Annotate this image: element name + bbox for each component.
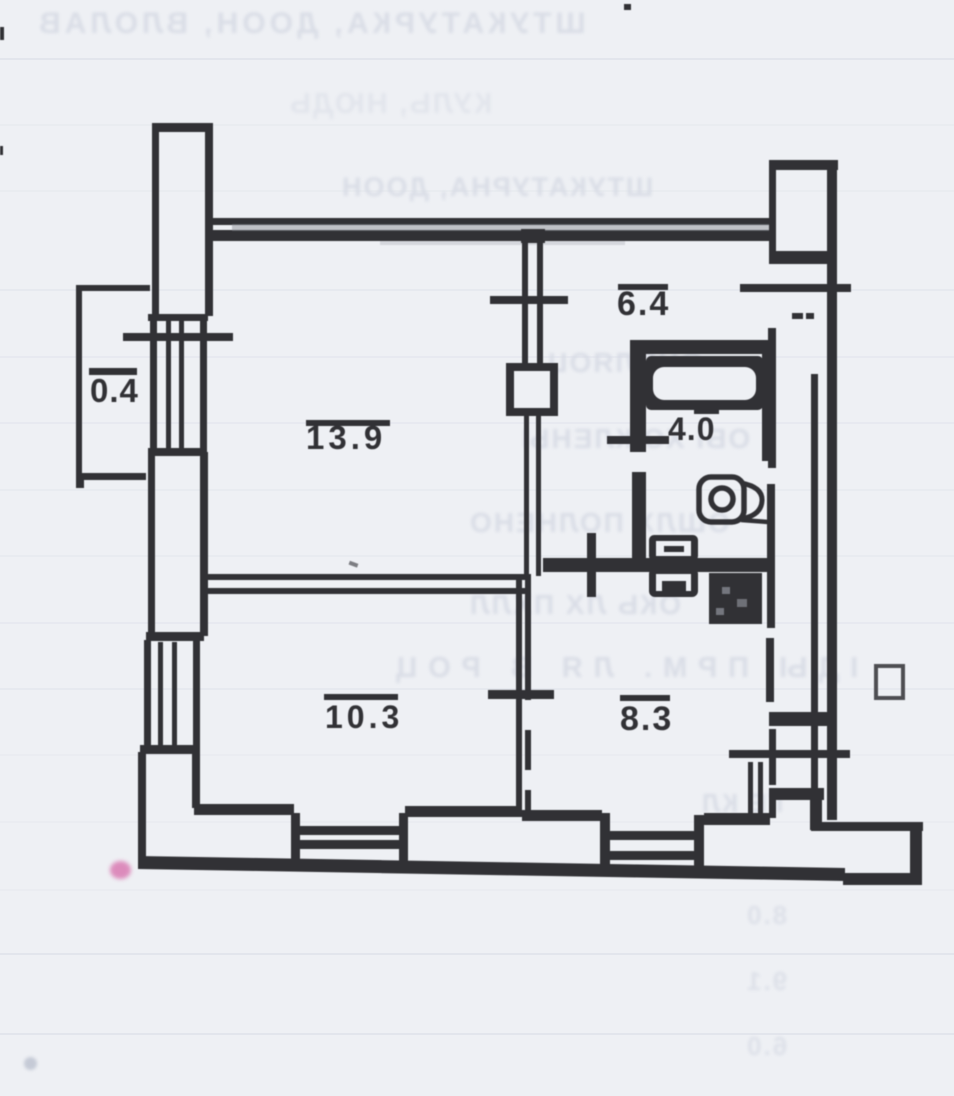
svg-text:0.4: 0.4 xyxy=(90,372,139,409)
svg-text:4.0: 4.0 xyxy=(668,411,715,447)
svg-text:13.9: 13.9 xyxy=(306,419,386,456)
svg-text:8.3: 8.3 xyxy=(620,700,673,738)
svg-text:10.3: 10.3 xyxy=(325,699,403,735)
svg-text:6.4: 6.4 xyxy=(617,285,670,323)
